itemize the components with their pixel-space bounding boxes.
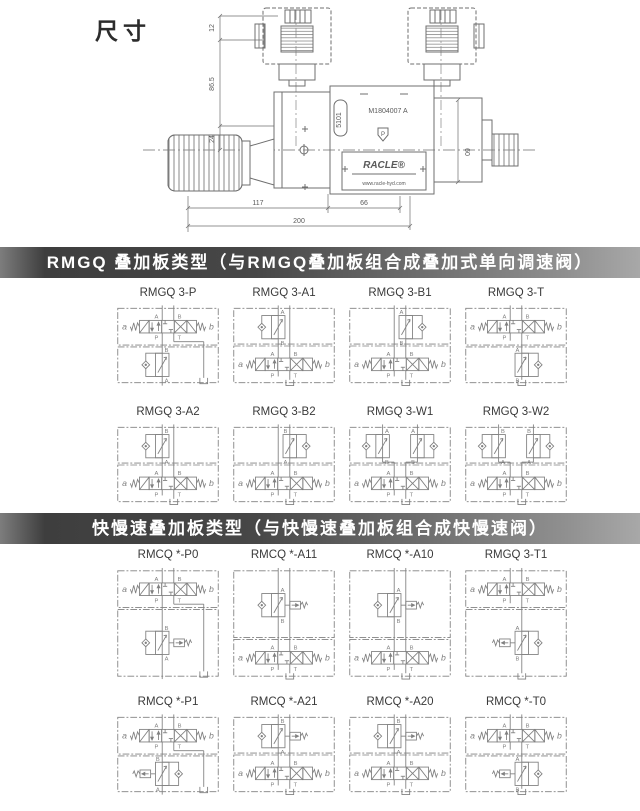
svg-text:a: a: [238, 768, 243, 778]
plus-mark: [302, 184, 308, 190]
svg-text:B: B: [526, 723, 530, 729]
svg-text:T: T: [294, 373, 298, 379]
symbol-row-3: RMCQ *-P0 abABPTBA RMCQ *-A11 abABPTAB R…: [110, 547, 574, 684]
svg-text:A: A: [527, 460, 531, 466]
svg-text:B: B: [526, 314, 530, 320]
symbol-cell: RMCQ *-T0 abABPTAB: [458, 694, 574, 799]
svg-text:T: T: [294, 667, 298, 673]
svg-text:b: b: [441, 653, 446, 663]
symbol-label: RMGQ 3-P: [140, 285, 197, 302]
section-banner-fast-slow: 快慢速叠加板类型（与快慢速叠加板组合成快慢速阀）: [0, 513, 640, 544]
svg-text:A: A: [502, 723, 506, 729]
hydraulic-symbol-svg: abABPTAB: [459, 711, 573, 799]
symbol-cell: RMCQ *-A10 abABPTAB: [342, 547, 458, 684]
svg-text:B: B: [400, 341, 404, 347]
dim-12: 12: [209, 24, 216, 32]
svg-text:b: b: [441, 478, 446, 488]
plus-mark: [420, 166, 426, 172]
svg-text:B: B: [527, 429, 531, 435]
svg-text:B: B: [526, 577, 530, 583]
dim-24: 24: [209, 135, 216, 143]
svg-text:P: P: [270, 782, 274, 788]
svg-text:T: T: [178, 492, 182, 498]
hydraulic-symbol: abABPTABAB: [343, 421, 457, 509]
svg-text:B: B: [165, 626, 169, 632]
symbol-cell: RMCQ *-A21 abABPTBA: [226, 694, 342, 799]
svg-text:B: B: [178, 314, 182, 320]
hydraulic-symbol: abABPTAB: [227, 302, 341, 390]
dimension-lines: [186, 14, 460, 232]
svg-text:a: a: [470, 731, 475, 741]
hydraulic-symbol-svg: abABPTBA: [227, 421, 341, 509]
svg-text:a: a: [354, 768, 359, 778]
svg-text:P: P: [270, 373, 274, 379]
svg-text:B: B: [397, 619, 401, 625]
svg-text:A: A: [502, 471, 506, 477]
plus-mark: [302, 126, 308, 132]
svg-text:T: T: [526, 745, 530, 751]
symbol-label: RMGQ 3-T: [488, 285, 544, 302]
svg-text:b: b: [325, 359, 330, 369]
dim-60: 60: [463, 148, 470, 156]
adjustment-knob: [168, 135, 274, 191]
svg-text:B: B: [294, 471, 298, 477]
symbol-row-4: RMCQ *-P1 abABPTBA RMCQ *-A21 abABPTBA R…: [110, 694, 574, 799]
symbol-cell: RMGQ 3-W1 abABPTABAB: [342, 404, 458, 509]
svg-text:P: P: [270, 667, 274, 673]
svg-text:A: A: [154, 723, 158, 729]
hydraulic-symbol-svg: abABPTAB: [459, 564, 573, 684]
svg-text:B: B: [410, 352, 414, 358]
svg-text:T: T: [294, 492, 298, 498]
svg-text:a: a: [470, 584, 475, 594]
svg-text:A: A: [154, 314, 158, 320]
svg-text:T: T: [526, 336, 530, 342]
svg-text:b: b: [557, 584, 562, 594]
svg-text:A: A: [165, 657, 169, 663]
svg-text:b: b: [441, 359, 446, 369]
hydraulic-symbol: abABPTAB: [459, 564, 573, 684]
svg-text:B: B: [410, 471, 414, 477]
svg-text:T: T: [294, 782, 298, 788]
svg-text:A: A: [165, 460, 169, 466]
svg-text:A: A: [385, 429, 389, 435]
technical-drawing: 117 66 200 60 12 86.5 24 M1804007 A 5101…: [128, 0, 552, 246]
hydraulic-symbol-svg: abABPTBABA: [459, 421, 573, 509]
svg-text:T: T: [178, 598, 182, 604]
svg-text:a: a: [238, 359, 243, 369]
symbol-cell: RMGQ 3-B2 abABPTBA: [226, 404, 342, 509]
symbol-cell: RMCQ *-P1 abABPTBA: [110, 694, 226, 799]
hydraulic-symbol: abABPTAB: [343, 564, 457, 684]
symbol-row-2: RMGQ 3-A2 abABPTBA RMGQ 3-B2 abABPTBA RM…: [110, 404, 574, 509]
svg-text:b: b: [441, 768, 446, 778]
din-connector-b: [408, 8, 484, 86]
symbol-label: RMGQ 3-A1: [252, 285, 315, 302]
hydraulic-symbol-svg: abABPTBA: [343, 711, 457, 799]
dim-200: 200: [293, 218, 305, 225]
svg-text:b: b: [557, 322, 562, 332]
code-label: 5101: [336, 112, 343, 128]
hydraulic-symbol-svg: abABPTAB: [227, 564, 341, 684]
symbol-label: RMCQ *-A20: [366, 694, 433, 711]
hydraulic-symbol: abABPTBA: [111, 711, 225, 799]
svg-text:P: P: [386, 667, 390, 673]
symbol-label: RMCQ *-P1: [138, 694, 199, 711]
symbol-label: RMCQ *-P0: [138, 547, 199, 564]
svg-text:B: B: [294, 646, 298, 652]
svg-text:A: A: [270, 646, 274, 652]
hydraulic-symbol-svg: abABPTBA: [111, 302, 225, 390]
symbol-label: RMGQ 3-A2: [136, 404, 199, 421]
svg-text:a: a: [354, 478, 359, 488]
hydraulic-symbol: abABPTAB: [343, 302, 457, 390]
symbol-label: RMCQ *-T0: [486, 694, 546, 711]
svg-text:B: B: [410, 761, 414, 767]
svg-text:a: a: [122, 731, 127, 741]
svg-text:P: P: [154, 492, 158, 498]
svg-text:B: B: [178, 471, 182, 477]
svg-text:A: A: [156, 788, 160, 794]
hydraulic-symbol-svg: abABPTBA: [227, 711, 341, 799]
svg-text:B: B: [156, 757, 160, 763]
svg-text:a: a: [470, 478, 475, 488]
symbol-label: RMGQ 3-T1: [485, 547, 548, 564]
svg-text:B: B: [281, 719, 285, 725]
hydraulic-symbol-svg: abABPTBA: [111, 564, 225, 684]
svg-text:B: B: [385, 460, 389, 466]
svg-text:A: A: [502, 577, 506, 583]
valve-body: [274, 86, 518, 194]
svg-text:A: A: [516, 348, 520, 354]
svg-text:b: b: [325, 653, 330, 663]
svg-text:a: a: [122, 322, 127, 332]
svg-text:A: A: [270, 352, 274, 358]
svg-text:A: A: [270, 761, 274, 767]
hydraulic-symbol-svg: abABPTBA: [111, 421, 225, 509]
hydraulic-symbol: abABPTAB: [227, 564, 341, 684]
svg-text:A: A: [411, 429, 415, 435]
svg-text:b: b: [209, 731, 214, 741]
svg-text:b: b: [557, 731, 562, 741]
svg-text:B: B: [410, 646, 414, 652]
symbol-cell: RMGQ 3-W2 abABPTBABA: [458, 404, 574, 509]
svg-text:b: b: [209, 478, 214, 488]
svg-text:P: P: [502, 336, 506, 342]
svg-text:a: a: [122, 478, 127, 488]
symbol-cell: RMCQ *-A20 abABPTBA: [342, 694, 458, 799]
svg-text:T: T: [410, 667, 414, 673]
svg-text:b: b: [209, 584, 214, 594]
svg-text:A: A: [516, 626, 520, 632]
symbol-cell: RMGQ 3-T1 abABPTAB: [458, 547, 574, 684]
svg-text:A: A: [281, 750, 285, 756]
svg-text:P: P: [154, 745, 158, 751]
svg-text:A: A: [501, 460, 505, 466]
svg-text:A: A: [154, 471, 158, 477]
svg-text:B: B: [294, 761, 298, 767]
svg-text:a: a: [354, 359, 359, 369]
svg-text:b: b: [557, 478, 562, 488]
svg-text:B: B: [165, 348, 169, 354]
svg-text:B: B: [281, 619, 285, 625]
svg-text:B: B: [281, 341, 285, 347]
symbol-cell: RMGQ 3-A2 abABPTBA: [110, 404, 226, 509]
svg-text:B: B: [284, 429, 288, 435]
svg-text:B: B: [411, 460, 415, 466]
svg-text:A: A: [284, 460, 288, 466]
svg-text:P: P: [502, 745, 506, 751]
symbol-cell: RMGQ 3-T abABPTAB: [458, 285, 574, 390]
svg-text:P: P: [154, 336, 158, 342]
svg-text:b: b: [325, 768, 330, 778]
svg-text:A: A: [281, 588, 285, 594]
symbol-cell: RMCQ *-P0 abABPTBA: [110, 547, 226, 684]
svg-text:T: T: [526, 492, 530, 498]
svg-text:T: T: [410, 373, 414, 379]
svg-text:B: B: [178, 577, 182, 583]
symbol-label: RMGQ 3-B2: [252, 404, 315, 421]
svg-text:A: A: [281, 310, 285, 316]
symbol-row-1: RMGQ 3-P abABPTBA RMGQ 3-A1 abABPTAB RMG…: [110, 285, 574, 390]
hydraulic-symbol-svg: abABPTAB: [227, 302, 341, 390]
symbol-label: RMCQ *-A10: [366, 547, 433, 564]
symbol-label: RMGQ 3-B1: [368, 285, 431, 302]
svg-text:P: P: [386, 492, 390, 498]
svg-text:a: a: [238, 478, 243, 488]
svg-text:P: P: [386, 373, 390, 379]
hydraulic-symbol-svg: abABPTBA: [111, 711, 225, 799]
svg-text:P: P: [386, 782, 390, 788]
svg-text:A: A: [386, 352, 390, 358]
svg-text:A: A: [400, 310, 404, 316]
svg-text:A: A: [154, 577, 158, 583]
svg-text:P: P: [270, 492, 274, 498]
svg-text:A: A: [270, 471, 274, 477]
section-banner-rmgq: RMGQ 叠加板类型（与RMGQ叠加板组合成叠加式单向调速阀）: [0, 247, 640, 278]
symbol-label: RMGQ 3-W1: [367, 404, 433, 421]
svg-text:A: A: [397, 750, 401, 756]
svg-text:a: a: [238, 653, 243, 663]
catalog-page: 尺寸: [0, 0, 640, 811]
hydraulic-symbol-svg: abABPTAB: [343, 302, 457, 390]
svg-text:B: B: [501, 429, 505, 435]
model-number: M1804007 A: [368, 108, 408, 115]
svg-text:A: A: [386, 761, 390, 767]
hydraulic-symbol-svg: abABPTABAB: [343, 421, 457, 509]
hydraulic-symbol: abABPTBA: [227, 421, 341, 509]
symbol-cell: RMGQ 3-A1 abABPTAB: [226, 285, 342, 390]
symbol-label: RMCQ *-A11: [251, 547, 317, 564]
brand-website: www.racle-hyd.com: [362, 181, 405, 187]
hydraulic-symbol: abABPTBA: [111, 302, 225, 390]
svg-text:b: b: [325, 478, 330, 488]
plus-mark: [342, 166, 348, 172]
svg-text:A: A: [502, 314, 506, 320]
din-connector-a: [255, 8, 331, 86]
brand-logo: RACLE®: [363, 160, 405, 171]
svg-text:P: P: [502, 598, 506, 604]
p-mark: P: [381, 132, 385, 138]
svg-text:A: A: [516, 757, 520, 763]
svg-text:T: T: [178, 336, 182, 342]
svg-text:B: B: [526, 471, 530, 477]
svg-text:B: B: [294, 352, 298, 358]
svg-text:P: P: [154, 598, 158, 604]
svg-text:b: b: [209, 322, 214, 332]
symbol-label: RMCQ *-A21: [250, 694, 317, 711]
hydraulic-symbol: abABPTBA: [343, 711, 457, 799]
svg-text:a: a: [122, 584, 127, 594]
svg-text:a: a: [354, 653, 359, 663]
svg-text:B: B: [516, 657, 520, 663]
dim-86-5: 86.5: [209, 77, 216, 91]
svg-text:T: T: [178, 745, 182, 751]
symbol-cell: RMCQ *-A11 abABPTAB: [226, 547, 342, 684]
svg-text:A: A: [397, 588, 401, 594]
hydraulic-symbol: abABPTAB: [459, 302, 573, 390]
symbol-label: RMGQ 3-W2: [483, 404, 549, 421]
symbol-cell: RMGQ 3-B1 abABPTAB: [342, 285, 458, 390]
svg-text:A: A: [386, 471, 390, 477]
svg-text:P: P: [502, 492, 506, 498]
hydraulic-symbol: abABPTBA: [227, 711, 341, 799]
svg-text:B: B: [165, 429, 169, 435]
svg-text:B: B: [397, 719, 401, 725]
hydraulic-symbol: abABPTBABA: [459, 421, 573, 509]
hydraulic-symbol-svg: abABPTAB: [343, 564, 457, 684]
hydraulic-symbol: abABPTBA: [111, 421, 225, 509]
svg-text:T: T: [410, 492, 414, 498]
hydraulic-symbol-svg: abABPTAB: [459, 302, 573, 390]
svg-text:A: A: [165, 379, 169, 385]
hydraulic-symbol: abABPTBA: [111, 564, 225, 684]
hydraulic-symbol: abABPTAB: [459, 711, 573, 799]
dim-117: 117: [252, 200, 263, 207]
svg-text:T: T: [526, 598, 530, 604]
svg-text:B: B: [178, 723, 182, 729]
dim-66: 66: [360, 200, 368, 207]
svg-text:A: A: [386, 646, 390, 652]
symbol-cell: RMGQ 3-P abABPTBA: [110, 285, 226, 390]
svg-text:T: T: [410, 782, 414, 788]
svg-text:a: a: [470, 322, 475, 332]
